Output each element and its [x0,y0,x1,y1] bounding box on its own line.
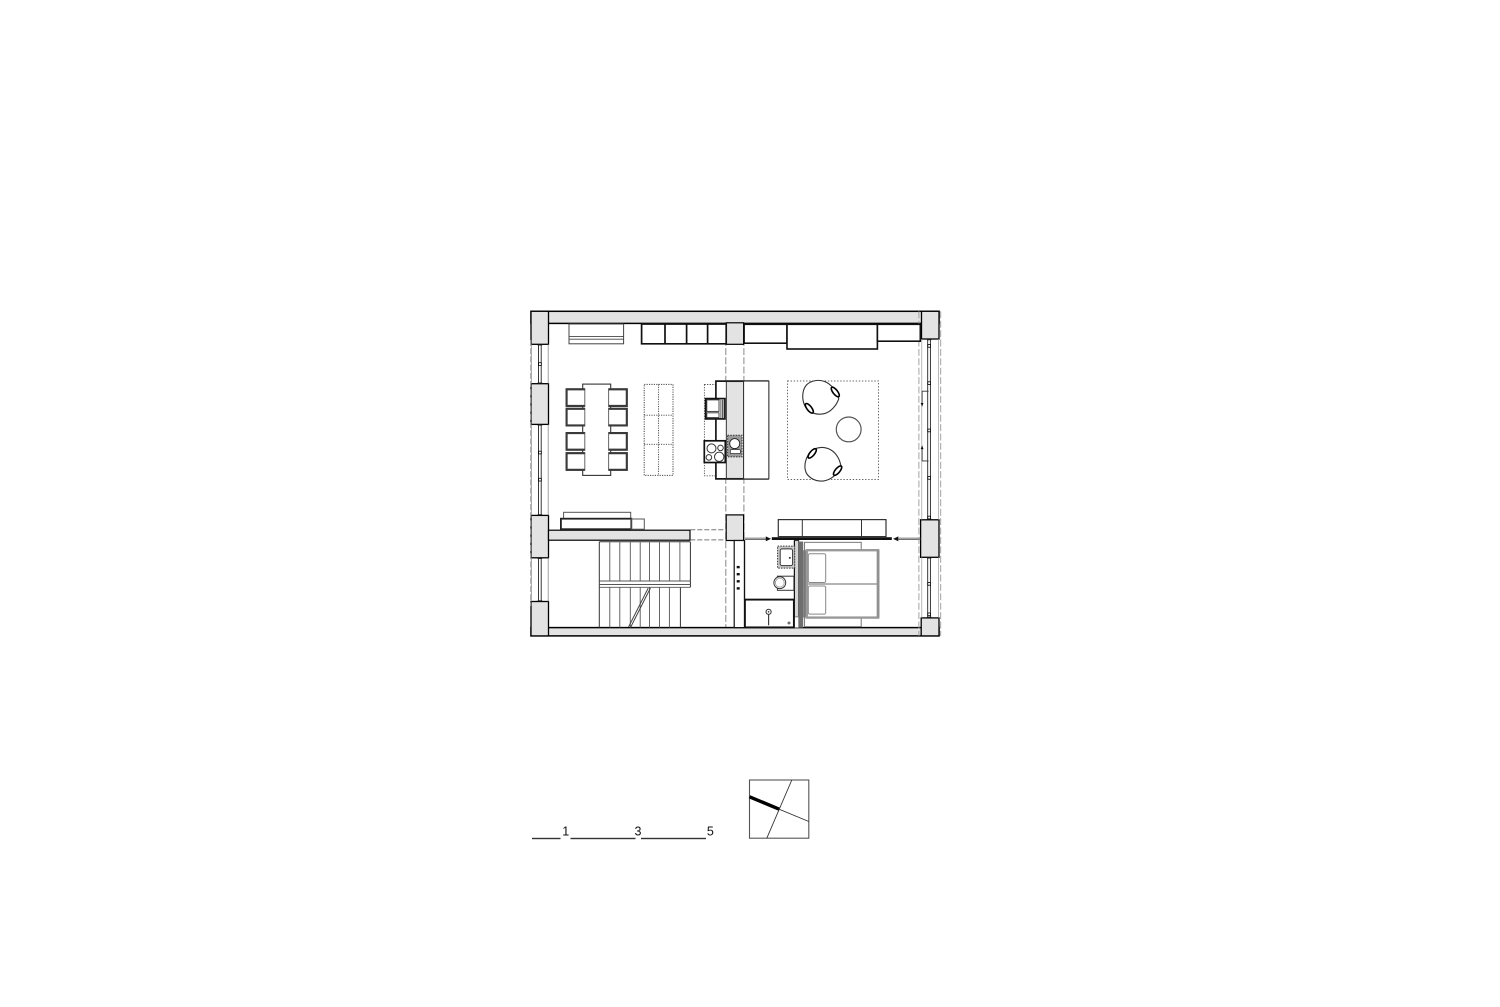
svg-text:3: 3 [635,825,642,839]
svg-text:1: 1 [562,825,569,839]
svg-text:5: 5 [707,825,714,839]
